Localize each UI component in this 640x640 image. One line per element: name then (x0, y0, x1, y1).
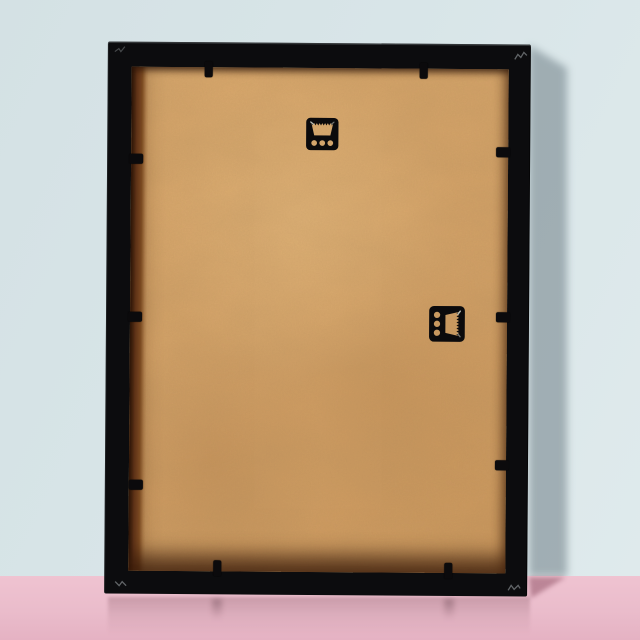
flex-tab-bottom-left (213, 560, 221, 576)
corner-scratch-top-left (113, 44, 129, 56)
sawtooth-hanger-icon (426, 303, 468, 345)
flex-tab-right-middle (496, 312, 510, 322)
tab-reflection (212, 599, 222, 619)
sawtooth-hanger-icon (303, 115, 341, 153)
picture-frame-back (104, 42, 531, 597)
flex-tab-left-upper (129, 154, 143, 164)
sawtooth-hanger-side (426, 303, 468, 345)
flex-tab-top-right (420, 63, 428, 79)
sawtooth-hanger-top (303, 115, 341, 153)
flex-tab-bottom-right (444, 563, 452, 579)
frame-reflection (108, 597, 530, 635)
flex-tab-left-middle (128, 312, 142, 322)
corner-scratch-bottom-left (113, 578, 129, 590)
flex-tab-left-lower (129, 480, 143, 490)
tab-reflection (444, 599, 454, 619)
scene (0, 0, 640, 640)
corner-scratch-bottom-right (506, 582, 522, 594)
flex-tab-top-left (205, 61, 213, 77)
flex-tab-right-upper (496, 147, 510, 157)
corner-scratch-top-right (513, 50, 529, 62)
flex-tab-right-lower (495, 460, 509, 470)
